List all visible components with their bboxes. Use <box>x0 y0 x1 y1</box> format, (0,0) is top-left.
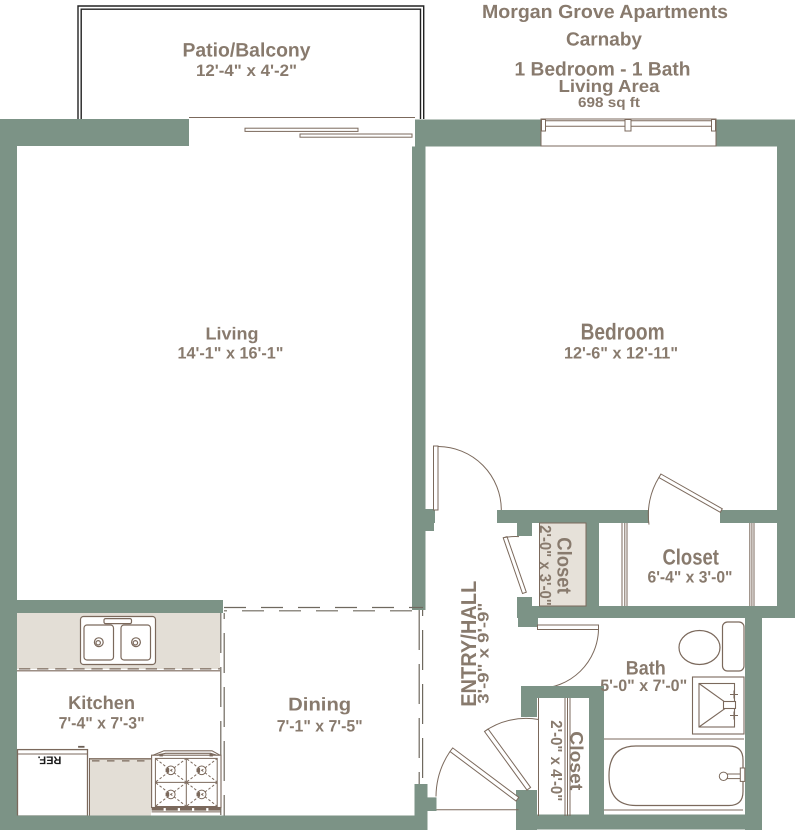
svg-text:Patio/Balcony: Patio/Balcony <box>183 39 311 61</box>
svg-text:2'-0" x 3'-0": 2'-0" x 3'-0" <box>536 525 553 606</box>
svg-text:Closet: Closet <box>662 544 719 569</box>
svg-text:Kitchen: Kitchen <box>68 692 135 713</box>
svg-text:Bedroom: Bedroom <box>581 318 665 344</box>
svg-text:Living Area: Living Area <box>559 76 660 96</box>
svg-text:7'-4" x 7'-3": 7'-4" x 7'-3" <box>59 715 145 733</box>
svg-text:2'-0" x 4'-0": 2'-0" x 4'-0" <box>547 720 564 801</box>
svg-text:3'-9" x 9'-9": 3'-9" x 9'-9" <box>475 603 492 704</box>
svg-text:5'-0" x 7'-0": 5'-0" x 7'-0" <box>600 677 687 695</box>
svg-text:7'-1" x 7'-5": 7'-1" x 7'-5" <box>277 717 363 735</box>
svg-text:6'-4" x 3'-0": 6'-4" x 3'-0" <box>648 569 733 587</box>
svg-text:698 sq ft: 698 sq ft <box>578 94 640 110</box>
svg-text:Dining: Dining <box>288 694 351 715</box>
svg-text:Morgan Grove Apartments: Morgan Grove Apartments <box>482 2 728 23</box>
svg-text:Living: Living <box>206 323 259 343</box>
svg-text:12'-4" x 4'-2": 12'-4" x 4'-2" <box>196 62 297 80</box>
svg-text:12'-6" x 12'-11": 12'-6" x 12'-11" <box>564 345 678 363</box>
svg-text:14'-1" x 16'-1": 14'-1" x 16'-1" <box>178 345 284 363</box>
svg-text:Closet: Closet <box>552 537 574 594</box>
svg-text:REF.: REF. <box>38 754 62 766</box>
svg-text:Closet: Closet <box>567 731 587 790</box>
svg-text:Carnaby: Carnaby <box>566 30 642 51</box>
